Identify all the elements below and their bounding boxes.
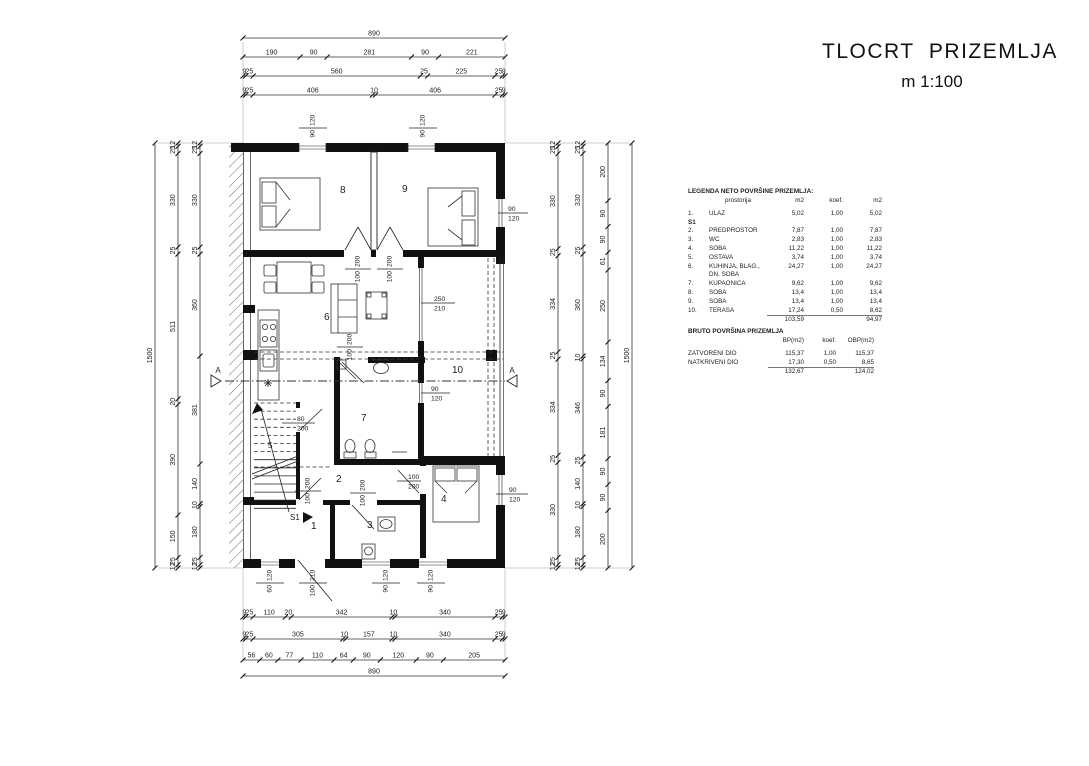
dim-label: 10 [575,353,582,361]
dim-chain-bottom-2: 9253051015710340259 [241,632,508,642]
dim-label: 90 [421,50,429,57]
dim-label: 890 [368,669,380,676]
terrace [486,258,504,456]
party-wall-hatch [229,143,243,568]
dim-label: 25 [550,352,557,360]
bed-room9 [428,188,478,246]
dim-label: 200 [600,166,607,178]
dim-label: 406 [429,88,441,95]
dim-label: 890 [368,31,380,38]
dim-label: 330 [575,194,582,206]
label-room8-door: 100 200 [345,255,371,282]
dim-label: 25 [575,456,582,464]
dim-label: 250 [600,300,607,312]
dashed-lines [254,352,503,467]
bed-room4 [433,466,479,522]
dim-label: 330 [170,194,177,206]
svg-text:210: 210 [434,306,446,313]
dim-chain-left-3: 122533025360381140101802512 [192,141,203,571]
dim-label: 346 [575,402,582,414]
window-wc [362,558,390,569]
dim-label: 25 [170,146,177,154]
svg-text:100: 100 [355,271,362,283]
dim-label: 511 [170,321,177,332]
dim-label: 10 [390,632,398,639]
room-label-4: 4 [441,494,447,505]
dim-label: 12 [550,562,557,570]
dim-label: 25 [170,247,177,255]
svg-text:100: 100 [347,349,354,361]
room-label-3: 3 [367,520,373,531]
dim-label: 560 [331,69,343,76]
label-top-window-1: 90 120 [299,114,327,137]
room-label-1: 1 [311,521,317,532]
dim-label: 342 [336,610,348,617]
svg-text:90: 90 [383,585,390,593]
dim-label: 360 [575,299,582,311]
dim-label: 90 [600,235,607,243]
dim-label: 221 [466,50,478,57]
partition-8-9 [371,152,377,250]
dim-label: 1500 [147,348,154,364]
wc-basin [378,517,395,531]
label-top-window-2: 90 120 [409,114,437,137]
svg-text:90: 90 [508,206,516,213]
dim-label: 140 [192,478,199,490]
dim-label: 180 [192,526,199,538]
svg-text:100: 100 [310,585,317,597]
room-label-2: 2 [336,474,342,485]
section-letter-left: A [215,366,221,375]
dim-label: 157 [363,632,375,639]
dim-label: 64 [340,653,348,660]
dim-label: 330 [192,194,199,206]
dim-label: 90 [600,390,607,398]
dim-label: 340 [439,632,451,639]
svg-text:120: 120 [509,497,521,504]
stair-mark-label: S1 [290,513,300,522]
walls [231,143,505,569]
bathroom-fixtures [337,360,407,458]
bed-room8 [260,178,320,230]
stove [260,320,277,347]
svg-text:200: 200 [355,255,362,267]
dim-label: 9 [502,88,506,95]
room-label-9: 9 [402,184,408,195]
section-letter-right: A [509,366,515,375]
svg-text:120: 120 [267,569,274,581]
window-top-1 [299,142,326,153]
dim-label: 9 [502,69,506,76]
dim-label: 10 [370,88,378,95]
svg-text:120: 120 [431,396,443,403]
dim-label: 140 [575,478,582,490]
section-marker-left [211,375,221,387]
dim-label: 25 [420,69,428,76]
dim-label: 340 [439,610,451,617]
svg-text:120: 120 [508,216,520,223]
dim-chain-right-1: 12253302533425334253302512 [550,141,561,571]
dim-label: 12 [170,562,177,570]
svg-text:120: 120 [383,569,390,581]
label-storage-door: 80 200 [282,416,315,433]
section-line: A A [211,366,517,387]
dim-chain-top-overall: 890 [241,31,508,41]
dim-label: 330 [550,504,557,516]
window-top-2 [408,142,435,153]
label-wc-window: 90 120 [372,569,400,592]
svg-text:200: 200 [297,426,309,433]
section-marker-right [507,375,517,387]
room-label-6: 6 [324,312,330,323]
room-label-10: 10 [452,365,464,376]
dim-label: 180 [575,526,582,538]
dim-label: 20 [170,398,177,406]
window-room4 [495,475,506,505]
dim-label: 225 [455,69,467,76]
dim-label: 330 [550,195,557,207]
dim-label: 134 [600,355,607,367]
kitchen-counter [258,310,279,400]
svg-text:100: 100 [305,493,312,505]
dim-chain-right-2: 1225330253601034625140101802512 [575,141,586,571]
svg-text:120: 120 [420,114,427,126]
svg-text:120: 120 [428,569,435,581]
dim-label: 25 [550,455,557,463]
dim-label: 360 [192,299,199,311]
stair-treads [254,403,296,508]
washing-machine [362,544,375,559]
dim-label: 90 [363,653,371,660]
room-label-5: 5 [268,441,273,450]
svg-text:60: 60 [267,585,274,593]
room-label-8: 8 [340,185,346,196]
dim-chain-top-4: 92540610406259 [241,88,508,98]
dim-label: 77 [286,653,294,660]
dim-label: 10 [192,501,199,509]
svg-text:100: 100 [408,474,420,481]
dim-label: 334 [550,401,557,413]
dim-label: 90 [600,210,607,218]
dim-label: 390 [170,454,177,466]
dim-label: 110 [264,610,275,617]
dim-label: 25 [550,146,557,154]
svg-text:100: 100 [360,495,367,507]
terrace-sliding-door [416,268,426,341]
dim-chain-top-3: 92556025225259 [241,69,508,79]
dim-label: 56 [248,653,256,660]
toilet [345,440,355,453]
dim-label: 381 [192,404,199,416]
dim-label: 25 [246,69,254,76]
dim-label: 25 [192,146,199,154]
dim-chain-left-overall: 1500 [147,141,158,571]
svg-text:120: 120 [310,114,317,126]
bidet [365,440,375,453]
dim-label: 120 [392,653,404,660]
dim-chain-top-2: 1909028190221 [241,50,508,60]
dim-label: 406 [307,88,319,95]
coffee-table [366,292,387,319]
dim-label: 25 [245,88,253,95]
svg-text:100: 100 [387,271,394,283]
dim-label: 25 [575,247,582,255]
dim-label: 10 [340,632,348,639]
svg-text:200: 200 [347,333,354,345]
svg-text:200: 200 [305,477,312,489]
dim-label: 25 [550,248,557,256]
boiler-symbol [264,379,272,387]
dim-label: 25 [245,632,253,639]
dim-label: 10 [575,501,582,509]
dim-label: 200 [600,533,607,545]
dim-label: 20 [284,610,292,617]
room-label-7: 7 [361,413,367,424]
dim-label: 60 [265,653,273,660]
svg-text:250: 250 [434,296,446,303]
svg-text:210: 210 [310,569,317,581]
washbasin [374,363,389,374]
label-bottom-window-1: 60 120 [256,569,284,592]
label-room9-door: 100 200 [377,255,403,282]
dim-chain-right-overall: 1500 [624,141,635,571]
dim-chain-bottom-3: 566077110649012090205 [241,653,508,663]
dim-label: 10 [390,610,398,617]
dim-label: 9 [502,632,506,639]
dim-label: 110 [312,653,323,660]
dim-chain-bottom-1: 9251102034210340259 [241,610,508,620]
svg-text:90: 90 [420,130,427,138]
dim-label: 305 [292,632,304,639]
window-bottom-60 [261,558,279,569]
svg-text:90: 90 [310,130,317,138]
dim-chain-left-2: 122533025511203901502512 [170,141,181,571]
svg-text:200: 200 [360,479,367,491]
dim-chain-right-3: 200909061250134901819090200 [600,141,611,571]
dim-label: 90 [426,653,434,660]
dim-label: 90 [600,493,607,501]
sofa [331,284,357,333]
svg-text:80: 80 [297,416,305,423]
stair-arrow-head [252,403,263,414]
dim-label: 61 [600,257,607,265]
drawing-sheet: TLOCRT PRIZEMLJA m 1:100 LEGENDA NETO PO… [0,0,1089,766]
svg-text:200: 200 [408,484,420,491]
svg-text:200: 200 [387,255,394,267]
dim-chain-bottom-overall: 890 [241,669,508,679]
dim-label: 25 [192,247,199,255]
dim-label: 90 [310,50,318,57]
dim-label: 190 [266,50,278,57]
svg-text:90: 90 [428,585,435,593]
window-room4-bottom [419,558,447,569]
dining-table [264,262,324,293]
stairs [252,403,298,512]
dim-label: 12 [575,562,582,570]
floor-plan-drawing: A A 1 2 3 4 5 6 7 8 9 10 S1 90 120 [0,0,1089,766]
dim-label: 1500 [624,348,631,364]
dim-label: 334 [550,298,557,310]
sink [260,350,277,371]
svg-text:90: 90 [431,386,439,393]
label-entry-door: 100 210 [299,569,327,596]
label-terrace-door: 250 210 [421,296,455,313]
dim-label: 90 [600,468,607,476]
dim-label: 181 [600,427,607,439]
dim-label: 150 [170,530,177,542]
dim-label: 205 [468,653,480,660]
dim-label: 281 [363,50,375,57]
svg-text:90: 90 [509,487,517,494]
dim-label: 25 [575,146,582,154]
label-room4-bottom-window: 90 120 [417,569,445,592]
dim-label: 9 [502,610,506,617]
dim-label: 12 [192,562,199,570]
dim-label: 25 [245,610,253,617]
